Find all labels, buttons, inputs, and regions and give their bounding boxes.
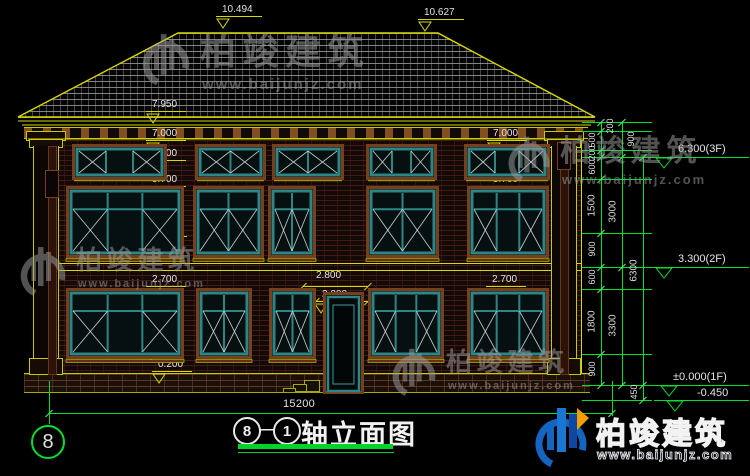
title-underline-thick: [238, 444, 393, 449]
axis-bubble-8: 8: [31, 425, 65, 459]
logo-site-text: www.baijunjz.com: [597, 447, 733, 462]
title-underline-thin: [238, 452, 394, 453]
title-axis-circle-8: 8: [233, 417, 261, 445]
title-circle-8-label: 8: [243, 423, 251, 440]
axis-bubble-label: 8: [42, 431, 53, 454]
roof-outline: [0, 0, 750, 476]
logo-glyph-icon: [533, 400, 595, 474]
title-axis-circle-1: 1: [273, 417, 301, 445]
cad-elevation-canvas: 10.49410.6277.9507.0006.5005.7004.2002.7…: [0, 0, 750, 476]
title-dash: —: [259, 421, 274, 438]
company-logo: 柏竣建筑 www.baijunjz.com: [533, 400, 595, 476]
title-circle-1-label: 1: [283, 423, 291, 440]
